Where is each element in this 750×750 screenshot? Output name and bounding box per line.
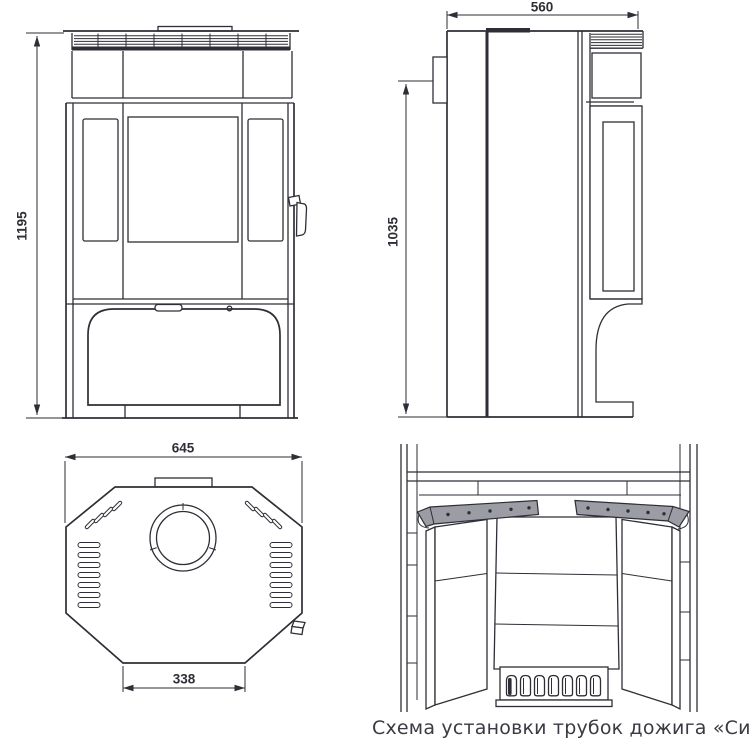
firebrick-back-wall xyxy=(494,517,619,669)
side-vent-slots-right xyxy=(270,543,292,608)
side-vent-slots-left xyxy=(78,543,100,608)
right-glass-panel xyxy=(248,119,283,241)
top-view-handle xyxy=(291,621,305,635)
top-view: 645 xyxy=(65,441,305,693)
side-base-curve xyxy=(590,299,642,417)
rear-tab-top xyxy=(155,478,212,487)
flue-height-label: 1035 xyxy=(386,216,401,247)
front-width-label: 338 xyxy=(173,672,196,687)
side-top-panel xyxy=(592,53,641,98)
drawing-svg: 1195 xyxy=(0,0,750,750)
top-grille xyxy=(72,33,290,51)
dim-flue-height: 1035 xyxy=(386,81,447,417)
side-louvers xyxy=(590,31,643,48)
left-glass-panel xyxy=(83,119,118,241)
side-glass-panel xyxy=(590,106,642,299)
top-plate-edge xyxy=(486,28,530,33)
ash-door-latch xyxy=(155,305,182,312)
flue-collar xyxy=(433,57,447,103)
firebrick-right-panel xyxy=(622,520,680,710)
firebox-window xyxy=(128,117,238,242)
depth-label: 560 xyxy=(531,0,554,15)
top-width-label: 645 xyxy=(172,441,195,456)
ash-door xyxy=(88,305,280,406)
firebrick-left-panel xyxy=(426,520,487,710)
dim-front-height: 1195 xyxy=(15,33,64,418)
front-view: 1195 xyxy=(15,27,307,419)
grate xyxy=(496,667,612,707)
stove-front-body xyxy=(62,27,307,419)
dim-depth: 560 xyxy=(447,0,638,29)
front-height-label: 1195 xyxy=(15,211,30,241)
firebox-view xyxy=(401,444,697,712)
stove-side-body xyxy=(433,28,643,417)
door-handle xyxy=(289,196,307,237)
upper-band xyxy=(66,51,294,103)
side-view: 560 1035 xyxy=(386,0,643,417)
caption: Схема установки трубок дожига «Сибирь-12… xyxy=(372,717,750,739)
dim-front-width: 338 xyxy=(123,666,245,692)
stove-technical-drawing: 1195 xyxy=(0,0,750,750)
